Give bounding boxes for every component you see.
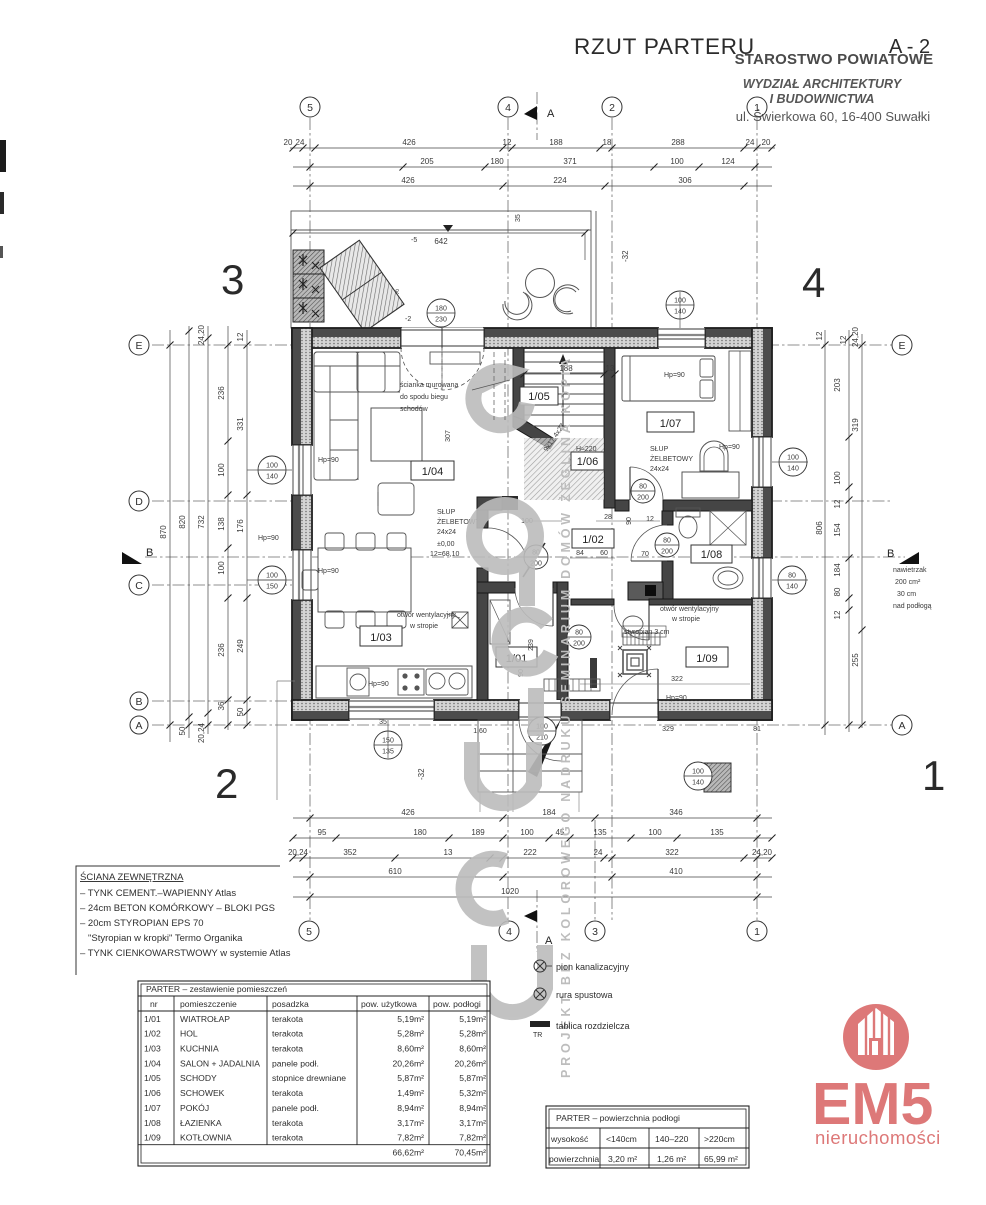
- svg-text:5,28m²: 5,28m²: [397, 1029, 424, 1039]
- svg-text:870: 870: [159, 525, 168, 539]
- svg-text:66,62m²: 66,62m²: [392, 1148, 424, 1158]
- svg-text:posadzka: posadzka: [272, 999, 309, 1009]
- svg-text:12: 12: [833, 499, 842, 508]
- svg-text:1/05: 1/05: [528, 391, 549, 403]
- svg-text:3,20 m²: 3,20 m²: [608, 1154, 637, 1164]
- svg-text:Hp=90: Hp=90: [318, 568, 339, 575]
- svg-text:100: 100: [266, 463, 278, 470]
- svg-text:140–220: 140–220: [655, 1134, 689, 1144]
- svg-text:20: 20: [284, 138, 293, 147]
- svg-text:24,20: 24,20: [851, 326, 860, 347]
- svg-text:24,20: 24,20: [752, 848, 773, 857]
- svg-text:KOTŁOWNIA: KOTŁOWNIA: [180, 1133, 232, 1143]
- svg-text:36: 36: [217, 701, 226, 710]
- svg-text:100: 100: [217, 561, 226, 575]
- svg-text:ŻELBETOWY: ŻELBETOWY: [650, 454, 693, 463]
- svg-text:3,17m²: 3,17m²: [459, 1118, 486, 1128]
- svg-text:322: 322: [665, 848, 679, 857]
- svg-text:Hp=90: Hp=90: [666, 695, 687, 702]
- svg-text:12: 12: [833, 610, 842, 619]
- svg-text:100: 100: [217, 463, 226, 477]
- svg-text:732: 732: [197, 515, 206, 529]
- svg-text:184: 184: [542, 808, 556, 817]
- svg-text:pomieszczenie: pomieszczenie: [180, 999, 237, 1009]
- svg-text:<140cm: <140cm: [606, 1134, 637, 1144]
- svg-text:PARTER – powierzchnia podłog: PARTER – powierzchnia podłogi: [556, 1113, 680, 1123]
- svg-text:1/09: 1/09: [696, 653, 717, 665]
- svg-text:terakota: terakota: [272, 1118, 303, 1128]
- svg-text:426: 426: [401, 176, 415, 185]
- svg-text:schodów: schodów: [400, 406, 429, 413]
- svg-text:1: 1: [754, 102, 760, 114]
- svg-text:1: 1: [922, 752, 945, 799]
- svg-text:D: D: [135, 496, 143, 508]
- svg-text:24: 24: [594, 848, 603, 857]
- svg-text:80: 80: [663, 538, 671, 545]
- svg-text:terakota: terakota: [272, 1029, 303, 1039]
- svg-text:STAROSTWO POWIATOWE: STAROSTWO POWIATOWE: [735, 51, 934, 68]
- svg-text:410: 410: [669, 867, 683, 876]
- svg-text:5,28m²: 5,28m²: [459, 1029, 486, 1039]
- svg-text:180: 180: [413, 828, 427, 837]
- svg-text:200: 200: [573, 641, 585, 648]
- svg-text:"Styropian w kropki" Termo Org: "Styropian w kropki" Termo Organika: [88, 933, 243, 944]
- svg-text:426: 426: [401, 808, 415, 817]
- svg-text:ŁAZIENKA: ŁAZIENKA: [180, 1118, 222, 1128]
- svg-text:13: 13: [444, 848, 453, 857]
- svg-text:80: 80: [639, 484, 647, 491]
- svg-text:5,32m²: 5,32m²: [459, 1088, 486, 1098]
- svg-text:224: 224: [553, 176, 567, 185]
- svg-text:panele podł.: panele podł.: [272, 1058, 319, 1068]
- svg-text:1/08: 1/08: [701, 549, 722, 561]
- svg-text:81: 81: [753, 726, 761, 733]
- svg-text:188: 188: [549, 138, 563, 147]
- svg-text:B: B: [887, 548, 894, 560]
- svg-text:205: 205: [420, 157, 434, 166]
- svg-text:100: 100: [520, 828, 534, 837]
- svg-text:H≈220: H≈220: [576, 446, 597, 453]
- svg-text:WIATROŁAP: WIATROŁAP: [180, 1014, 230, 1024]
- svg-text:329: 329: [662, 726, 674, 733]
- svg-text:1/09: 1/09: [144, 1133, 161, 1143]
- svg-text:E: E: [135, 340, 142, 352]
- svg-text:3: 3: [221, 256, 244, 303]
- svg-text:A: A: [135, 720, 142, 732]
- svg-text:12: 12: [503, 138, 512, 147]
- svg-text:5: 5: [306, 926, 312, 938]
- svg-text:642: 642: [434, 237, 448, 246]
- svg-text:200: 200: [637, 495, 649, 502]
- svg-text:w stropie: w stropie: [671, 616, 700, 623]
- svg-text:20,26m²: 20,26m²: [454, 1058, 486, 1068]
- svg-text:1/04: 1/04: [144, 1058, 161, 1068]
- svg-text:TR: TR: [533, 1032, 542, 1039]
- svg-text:239: 239: [528, 639, 535, 651]
- svg-text:12: 12: [839, 335, 848, 344]
- svg-text:otwór wentylacyjny: otwór wentylacyjny: [660, 606, 719, 613]
- svg-text:230: 230: [435, 317, 447, 324]
- svg-text:12=68,10: 12=68,10: [430, 551, 459, 558]
- svg-text:100: 100: [787, 455, 799, 462]
- svg-text:100: 100: [670, 157, 684, 166]
- svg-text:331: 331: [236, 417, 245, 431]
- svg-text:222: 222: [523, 848, 537, 857]
- svg-text:ul. Świerkowa 60, 16-400 Suwał: ul. Świerkowa 60, 16-400 Suwałki: [736, 109, 930, 124]
- svg-text:12: 12: [236, 332, 245, 341]
- svg-text:nad podłogą: nad podłogą: [893, 603, 932, 610]
- svg-text:1/03: 1/03: [144, 1044, 161, 1054]
- svg-text:pion kanalizacyjny: pion kanalizacyjny: [556, 962, 630, 972]
- svg-text:100: 100: [833, 471, 842, 485]
- svg-text:820: 820: [178, 515, 187, 529]
- svg-text:154: 154: [833, 523, 842, 537]
- svg-text:I BUDOWNICTWA: I BUDOWNICTWA: [770, 92, 875, 106]
- svg-text:135: 135: [710, 828, 724, 837]
- svg-text:ŚCIANA ZEWNĘTRZNA: ŚCIANA ZEWNĘTRZNA: [80, 871, 184, 883]
- svg-text:24x24: 24x24: [437, 529, 456, 536]
- svg-text:50: 50: [236, 707, 245, 716]
- svg-text:B: B: [146, 547, 153, 559]
- svg-text:1020: 1020: [501, 887, 519, 896]
- svg-text:4: 4: [505, 102, 511, 114]
- svg-text:1,60: 1,60: [473, 728, 487, 735]
- svg-text:Hp=90: Hp=90: [719, 444, 740, 451]
- svg-text:28: 28: [604, 514, 612, 521]
- svg-text:1/07: 1/07: [144, 1103, 161, 1113]
- svg-text:18: 18: [603, 138, 612, 147]
- svg-text:Hp=90: Hp=90: [368, 681, 389, 688]
- svg-text:SCHODY: SCHODY: [180, 1073, 217, 1083]
- svg-text:powierzchnia: powierzchnia: [549, 1154, 599, 1164]
- svg-text:B: B: [135, 696, 142, 708]
- svg-text:-32: -32: [621, 250, 630, 262]
- svg-text:13: 13: [606, 364, 615, 373]
- svg-text:30 cm: 30 cm: [897, 591, 916, 598]
- svg-text:307: 307: [445, 430, 452, 442]
- svg-text:1/01: 1/01: [144, 1014, 161, 1024]
- svg-text:w stropie: w stropie: [409, 623, 438, 630]
- svg-text:60: 60: [600, 550, 608, 557]
- svg-text:2: 2: [609, 102, 615, 114]
- svg-text:pow. podłogi: pow. podłogi: [433, 999, 481, 1009]
- svg-text:35: 35: [379, 719, 387, 726]
- svg-text:65,99 m²: 65,99 m²: [704, 1154, 738, 1164]
- svg-text:1/05: 1/05: [144, 1073, 161, 1083]
- svg-text:8,60m²: 8,60m²: [397, 1044, 424, 1054]
- svg-text:1,49m²: 1,49m²: [397, 1088, 424, 1098]
- svg-text:A: A: [898, 720, 905, 732]
- svg-text:E: E: [898, 340, 905, 352]
- svg-text:24: 24: [746, 138, 755, 147]
- svg-text:189: 189: [471, 828, 485, 837]
- svg-text:stopnice drewniane: stopnice drewniane: [272, 1073, 346, 1083]
- svg-text:nawietrzak: nawietrzak: [893, 567, 927, 574]
- svg-text:12: 12: [815, 331, 824, 340]
- svg-text:5,19m²: 5,19m²: [459, 1014, 486, 1024]
- svg-text:200: 200: [661, 549, 673, 556]
- svg-text:84: 84: [576, 550, 584, 557]
- svg-text:200 cm²: 200 cm²: [895, 579, 921, 586]
- svg-text:352: 352: [343, 848, 357, 857]
- svg-text:nr: nr: [150, 999, 158, 1009]
- svg-text:80: 80: [833, 587, 842, 596]
- svg-text:-2: -2: [405, 316, 411, 323]
- svg-text:7,82m²: 7,82m²: [459, 1133, 486, 1143]
- svg-text:24: 24: [296, 138, 305, 147]
- svg-text:4: 4: [802, 259, 825, 306]
- svg-text:100: 100: [266, 573, 278, 580]
- svg-text:RZUT PARTERU: RZUT PARTERU: [574, 34, 755, 59]
- svg-text:terakota: terakota: [272, 1014, 303, 1024]
- svg-text:A: A: [547, 108, 555, 120]
- svg-text:7,82m²: 7,82m²: [397, 1133, 424, 1143]
- svg-text:1/06: 1/06: [577, 456, 598, 468]
- svg-text:176: 176: [236, 519, 245, 533]
- svg-text:140: 140: [266, 474, 278, 481]
- svg-text:8,94m²: 8,94m²: [459, 1103, 486, 1113]
- svg-text:– 24cm BETON KOMÓRKOWY – BLOK: – 24cm BETON KOMÓRKOWY – BLOKI PGS: [80, 903, 275, 914]
- svg-text:346: 346: [669, 808, 683, 817]
- svg-text:140: 140: [787, 466, 799, 473]
- svg-text:4: 4: [506, 926, 512, 938]
- svg-text:rura spustowa: rura spustowa: [556, 990, 613, 1000]
- svg-text:80: 80: [575, 630, 583, 637]
- svg-text:20,26m²: 20,26m²: [392, 1058, 424, 1068]
- svg-text:3: 3: [592, 926, 598, 938]
- svg-text:terakota: terakota: [272, 1133, 303, 1143]
- svg-text:– TYNK CEMENT.–WAPIENNY Atlas: – TYNK CEMENT.–WAPIENNY Atlas: [80, 888, 236, 899]
- svg-text:236: 236: [217, 386, 226, 400]
- svg-text:1/07: 1/07: [660, 418, 681, 430]
- svg-text:Hp=90: Hp=90: [318, 457, 339, 464]
- svg-text:306: 306: [678, 176, 692, 185]
- svg-text:POKÓJ: POKÓJ: [180, 1103, 209, 1113]
- svg-text:nieruchomości: nieruchomości: [815, 1127, 941, 1148]
- svg-text:5,87m²: 5,87m²: [459, 1073, 486, 1083]
- svg-text:24x24: 24x24: [650, 466, 669, 473]
- svg-text:24,20: 24,20: [197, 324, 206, 345]
- svg-text:100: 100: [692, 769, 704, 776]
- svg-text:1: 1: [754, 926, 760, 938]
- svg-text:SŁUP: SŁUP: [650, 446, 669, 453]
- svg-text:otwór wentylacyjny: otwór wentylacyjny: [397, 612, 456, 619]
- svg-text:SALON + JADALNIA: SALON + JADALNIA: [180, 1058, 260, 1068]
- svg-text:180: 180: [490, 157, 504, 166]
- svg-text:255: 255: [851, 653, 860, 667]
- svg-text:100: 100: [648, 828, 662, 837]
- svg-text:5,87m²: 5,87m²: [397, 1073, 424, 1083]
- svg-text:1/04: 1/04: [422, 466, 443, 478]
- svg-text:5: 5: [307, 102, 313, 114]
- svg-text:138: 138: [217, 517, 226, 531]
- svg-text:-32: -32: [417, 768, 426, 780]
- svg-text:135: 135: [593, 828, 607, 837]
- svg-text:styropian 3 cm: styropian 3 cm: [624, 629, 670, 636]
- svg-text:70,45m²: 70,45m²: [454, 1148, 486, 1158]
- svg-text:3,17m²: 3,17m²: [397, 1118, 424, 1128]
- svg-text:tablica rozdzielcza: tablica rozdzielcza: [556, 1021, 630, 1031]
- svg-text:1/02: 1/02: [144, 1029, 161, 1039]
- svg-text:12: 12: [646, 516, 654, 523]
- svg-text:WYDZIAŁ ARCHITEKTURY: WYDZIAŁ ARCHITEKTURY: [743, 77, 903, 91]
- svg-text:terakota: terakota: [272, 1088, 303, 1098]
- svg-text:-5: -5: [411, 237, 417, 244]
- svg-text:288: 288: [671, 138, 685, 147]
- svg-text:1/02: 1/02: [582, 534, 603, 546]
- svg-text:140: 140: [786, 584, 798, 591]
- svg-text:319: 319: [851, 418, 860, 432]
- svg-text:806: 806: [815, 521, 824, 535]
- svg-text:371: 371: [563, 157, 577, 166]
- svg-text:wysokość: wysokość: [550, 1134, 589, 1144]
- svg-text:180: 180: [435, 306, 447, 313]
- svg-text:>220cm: >220cm: [704, 1134, 735, 1144]
- svg-text:322: 322: [671, 676, 683, 683]
- svg-text:±0,00: ±0,00: [437, 541, 455, 548]
- svg-text:184: 184: [833, 563, 842, 577]
- svg-text:50: 50: [178, 726, 187, 735]
- svg-text:20: 20: [762, 138, 771, 147]
- svg-text:C: C: [135, 580, 143, 592]
- svg-text:35: 35: [515, 214, 522, 222]
- svg-text:Hp=90: Hp=90: [664, 372, 685, 379]
- svg-text:236: 236: [217, 643, 226, 657]
- svg-text:80: 80: [788, 573, 796, 580]
- svg-text:HOL: HOL: [180, 1029, 198, 1039]
- svg-text:70: 70: [641, 551, 649, 558]
- svg-text:SŁUP: SŁUP: [437, 509, 456, 516]
- svg-text:– 20cm STYROPIAN EPS 70: – 20cm STYROPIAN EPS 70: [80, 918, 204, 929]
- svg-text:ścianka murowana: ścianka murowana: [400, 382, 458, 389]
- svg-text:5,19m²: 5,19m²: [397, 1014, 424, 1024]
- svg-text:terakota: terakota: [272, 1044, 303, 1054]
- svg-text:panele podł.: panele podł.: [272, 1103, 319, 1113]
- svg-text:140: 140: [692, 780, 704, 787]
- svg-text:– TYNK CIENKOWARSTWOWY w syst: – TYNK CIENKOWARSTWOWY w systemie Atlas: [80, 948, 291, 959]
- svg-text:Hp=90: Hp=90: [258, 535, 279, 542]
- svg-text:249: 249: [236, 639, 245, 653]
- svg-text:610: 610: [388, 867, 402, 876]
- svg-text:203: 203: [833, 378, 842, 392]
- svg-text:150: 150: [266, 584, 278, 591]
- svg-text:pow. użytkowa: pow. użytkowa: [361, 999, 417, 1009]
- svg-text:PARTER – zestawienie pomie: PARTER – zestawienie pomieszczeń: [146, 984, 287, 994]
- svg-text:95: 95: [318, 828, 327, 837]
- svg-text:do spodu biegu: do spodu biegu: [400, 394, 448, 401]
- svg-text:90: 90: [626, 517, 633, 525]
- svg-text:426: 426: [402, 138, 416, 147]
- svg-text:SCHOWEK: SCHOWEK: [180, 1088, 225, 1098]
- svg-text:1/03: 1/03: [370, 632, 391, 644]
- svg-text:1/06: 1/06: [144, 1088, 161, 1098]
- svg-text:20,24: 20,24: [288, 848, 309, 857]
- svg-text:1/08: 1/08: [144, 1118, 161, 1128]
- svg-text:8,94m²: 8,94m²: [397, 1103, 424, 1113]
- svg-text:1,26 m²: 1,26 m²: [657, 1154, 686, 1164]
- svg-text:8,60m²: 8,60m²: [459, 1044, 486, 1054]
- svg-text:2: 2: [215, 760, 238, 807]
- svg-text:KUCHNIA: KUCHNIA: [180, 1044, 219, 1054]
- svg-text:124: 124: [721, 157, 735, 166]
- svg-text:20,24: 20,24: [197, 722, 206, 743]
